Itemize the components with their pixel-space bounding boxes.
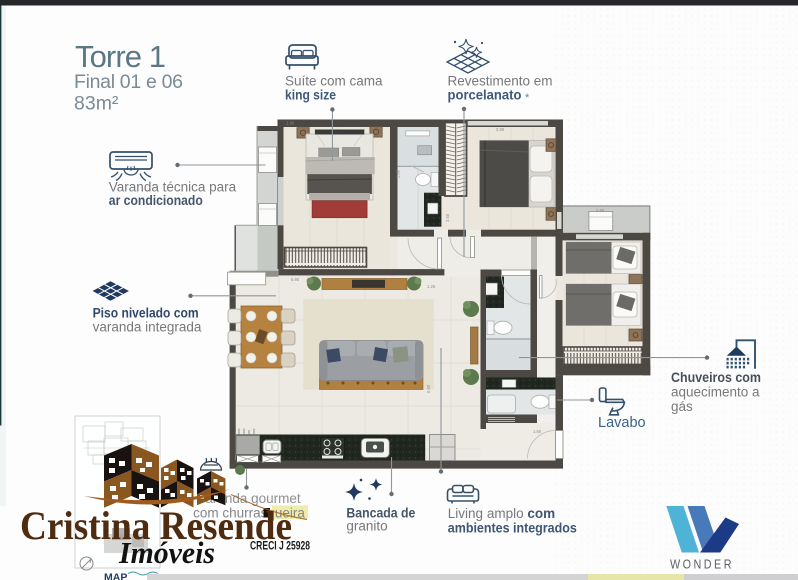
svg-text:WONDER: WONDER <box>670 557 734 572</box>
svg-text:CRECI J 25928: CRECI J 25928 <box>250 541 310 553</box>
svg-text:1.25: 1.25 <box>427 284 436 289</box>
svg-text:granito: granito <box>346 519 387 534</box>
svg-text:gás: gás <box>671 399 693 414</box>
svg-text:MAP: MAP <box>104 572 127 580</box>
svg-text:83m²: 83m² <box>74 93 119 115</box>
svg-text:varanda integrada: varanda integrada <box>93 320 202 335</box>
svg-text:2.90: 2.90 <box>496 127 505 132</box>
svg-text:Revestimento em: Revestimento em <box>448 74 553 89</box>
svg-text:porcelanato: porcelanato <box>448 88 522 103</box>
svg-text:1.90: 1.90 <box>286 121 295 126</box>
svg-text:*: * <box>525 92 530 104</box>
svg-text:Final 01 e 06: Final 01 e 06 <box>74 71 183 93</box>
svg-text:1.60: 1.60 <box>533 429 542 434</box>
svg-text:ambientes integrados: ambientes integrados <box>448 521 577 536</box>
svg-text:2.80: 2.80 <box>396 169 401 178</box>
svg-text:king size: king size <box>285 88 336 103</box>
svg-text:5.90: 5.90 <box>291 277 300 282</box>
svg-text:Living amplo com: Living amplo com <box>448 506 555 521</box>
svg-text:Imóveis: Imóveis <box>118 535 215 570</box>
svg-text:Lavabo: Lavabo <box>598 415 646 431</box>
svg-text:2.60: 2.60 <box>445 213 450 222</box>
svg-text:Piso nivelado com: Piso nivelado com <box>93 306 199 321</box>
svg-text:2.90: 2.90 <box>596 208 605 213</box>
svg-text:Torre 1: Torre 1 <box>75 39 166 74</box>
svg-text:0.80: 0.80 <box>426 384 431 393</box>
svg-text:aquecimento a: aquecimento a <box>671 385 760 400</box>
svg-text:Suíte com cama: Suíte com cama <box>285 74 383 89</box>
svg-text:ar condicionado: ar condicionado <box>109 193 203 208</box>
svg-text:Chuveiros com: Chuveiros com <box>671 370 761 385</box>
